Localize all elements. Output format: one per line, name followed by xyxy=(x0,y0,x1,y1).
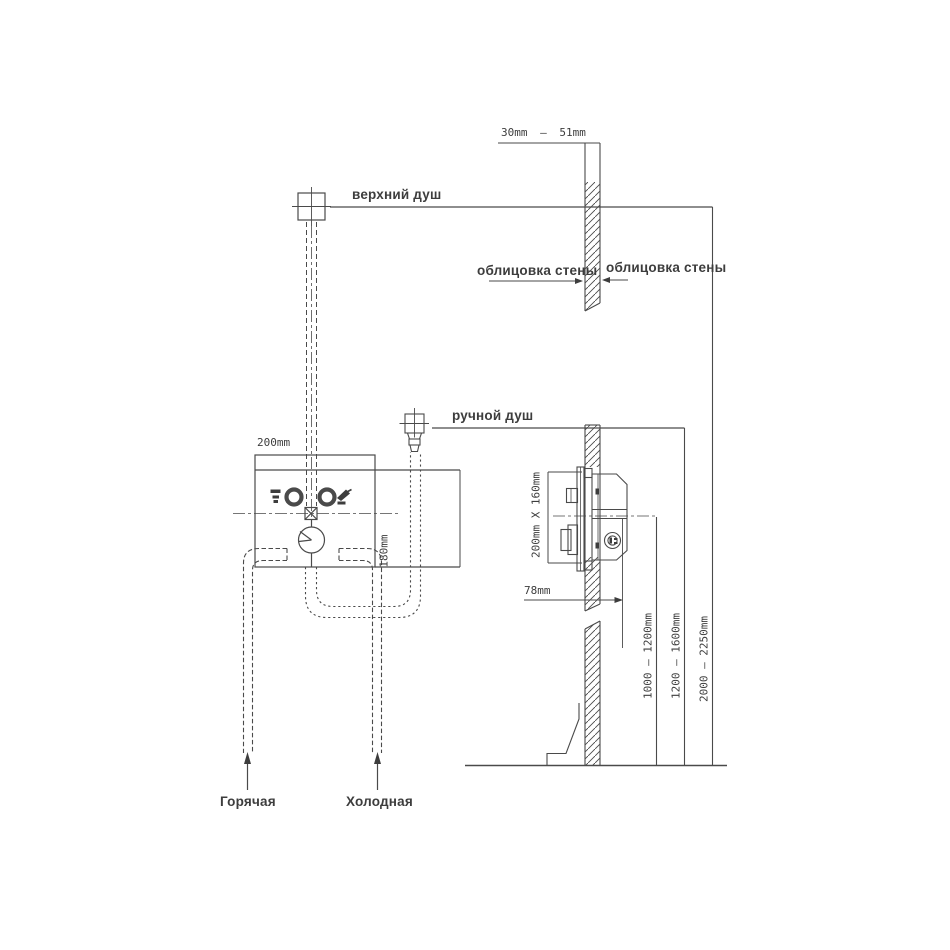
front-view xyxy=(233,187,713,790)
hot-supply-pipe xyxy=(244,549,288,754)
hot-water-arrow xyxy=(244,752,251,790)
wall-cladding-label-right: облицовка стены xyxy=(606,260,726,275)
cladding-thickness-dim: 30mm – 51mm xyxy=(501,126,586,139)
overhead-shower-symbol xyxy=(292,187,331,226)
hot-water-label: Горячая xyxy=(220,794,276,809)
side-view xyxy=(465,143,727,766)
hand-shower-height-dim: 1200 — 1600mm xyxy=(670,613,683,699)
shower-installation-diagram: верхний душ ручной душ облицовка стены о… xyxy=(0,0,950,950)
wall-cladding-label-left: облицовка стены xyxy=(477,263,597,278)
diagram-linework xyxy=(0,0,950,950)
shower-tray-profile xyxy=(547,703,579,765)
box-width-dim: 200mm xyxy=(257,436,290,449)
cold-water-label: Холодная xyxy=(346,794,413,809)
overhead-shower-icon xyxy=(271,490,281,504)
mixer-knob-right xyxy=(320,490,335,505)
diverter-knob xyxy=(299,520,325,568)
hand-shower-holder xyxy=(400,408,430,452)
mixer-box xyxy=(255,455,460,567)
mixer-knob-left xyxy=(287,490,302,505)
top-shower-height-dim: 2000 — 2250mm xyxy=(698,616,711,702)
cladding-arrow-right xyxy=(602,277,628,283)
cold-supply-pipe xyxy=(339,549,382,754)
box-height-dim: 180mm xyxy=(378,534,391,567)
wall-lower xyxy=(585,621,600,765)
box-depth-dim-label: 78mm xyxy=(524,584,551,597)
top-shower-label: верхний душ xyxy=(352,187,441,202)
wall-upper xyxy=(585,143,600,311)
side-knob xyxy=(605,533,621,549)
box-face-dim: 200mm X 160mm xyxy=(530,472,543,558)
mixer-box-side xyxy=(561,467,627,571)
cold-water-arrow xyxy=(374,752,381,790)
hand-shower-label: ручной душ xyxy=(452,408,533,423)
mixer-height-dim: 1000 — 1200mm xyxy=(642,613,655,699)
hand-shower-icon xyxy=(337,490,352,505)
cladding-arrow-left xyxy=(489,278,583,284)
